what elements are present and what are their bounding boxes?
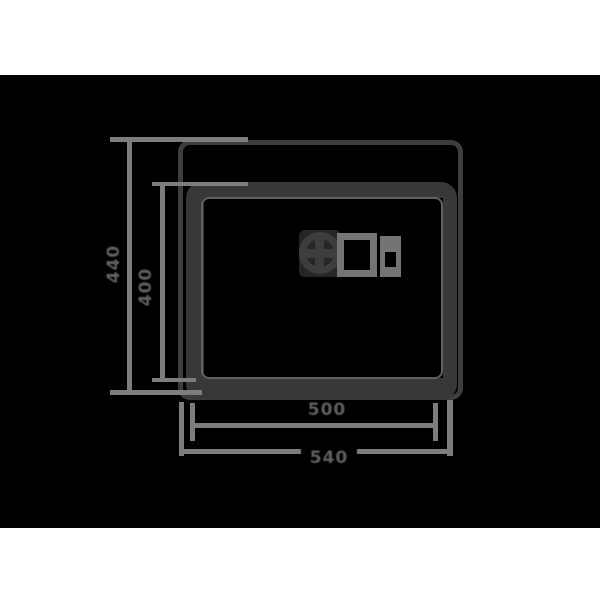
sink-dimension-drawing: 500 540 440 400 <box>0 75 600 528</box>
white-margin-bottom <box>0 528 600 600</box>
white-margin-top <box>0 0 600 75</box>
dimension-ext-bottom-inner-left <box>190 403 195 441</box>
dimension-label-bottom-outer: 540 <box>301 448 357 468</box>
clip-hole <box>385 252 396 267</box>
dimension-line-left-inner <box>160 184 165 382</box>
dimension-line-bottom-inner <box>192 423 436 428</box>
dimension-ext-bottom-inner-right <box>433 403 438 441</box>
dimension-label-left-inner: 400 <box>136 262 156 312</box>
dimension-cap-left-outer-top <box>110 137 248 142</box>
dimension-label-left-outer: 440 <box>104 239 124 289</box>
dimension-cap-left-outer-bottom <box>110 390 202 395</box>
dimension-ext-bottom-outer-right <box>447 400 453 456</box>
bowl-inner-radius-line <box>201 197 443 379</box>
overflow-outline <box>337 233 377 277</box>
dimension-ext-bottom-outer-left <box>179 402 184 456</box>
dimension-line-left-outer <box>127 141 132 393</box>
dimension-cap-left-inner-bottom <box>152 378 196 382</box>
drain-cross-vertical <box>315 239 324 267</box>
dimension-cap-left-inner-top <box>152 182 248 186</box>
dimension-label-bottom-inner: 500 <box>300 400 354 420</box>
